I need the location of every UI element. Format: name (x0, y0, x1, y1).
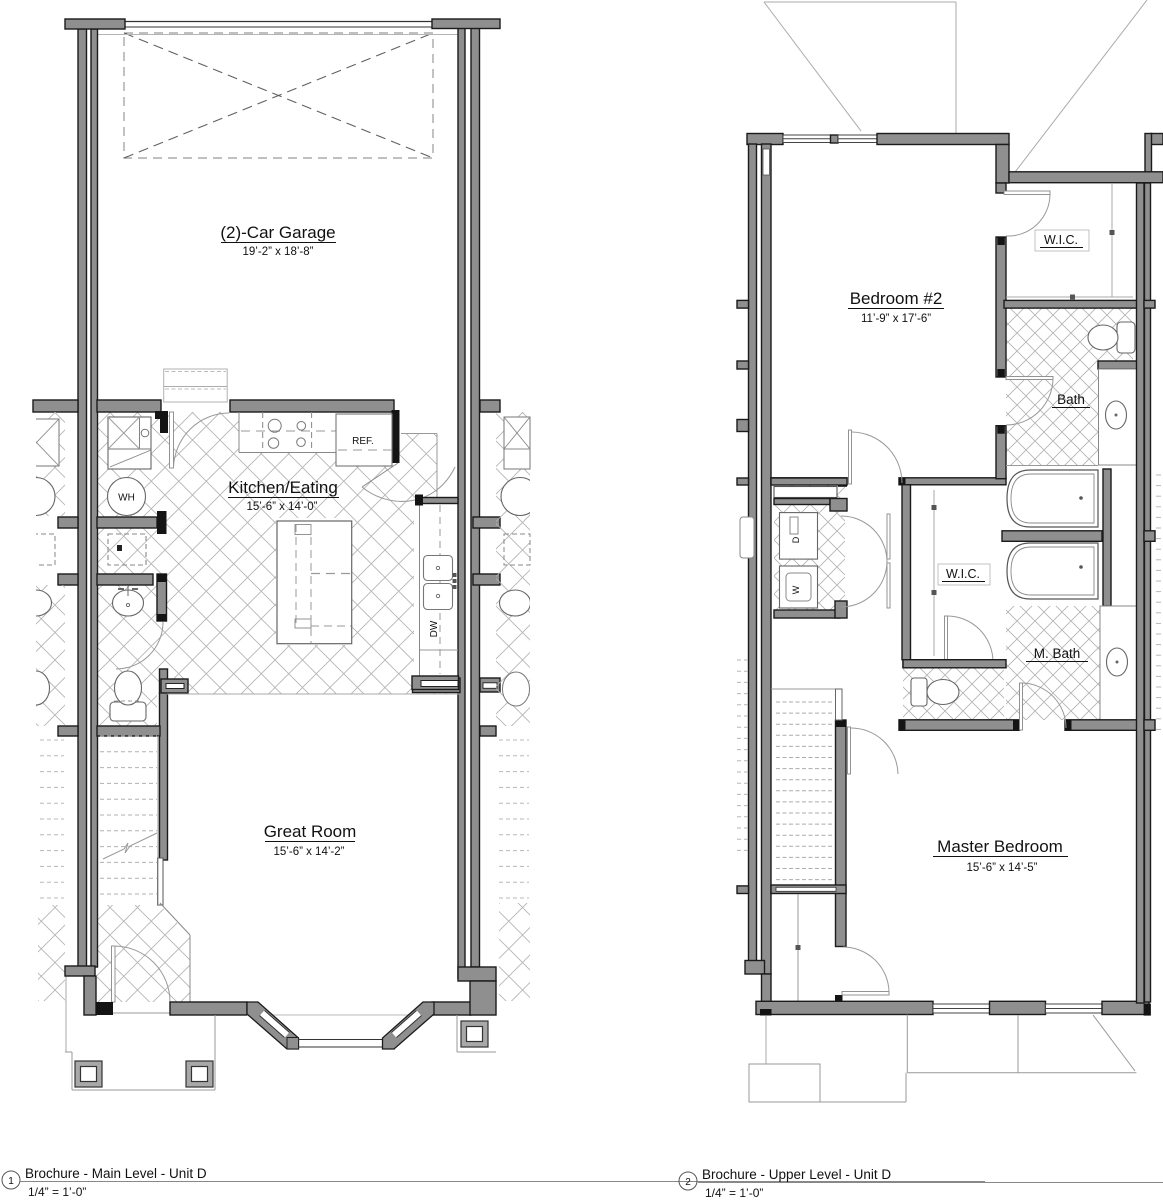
svg-text:W.I.C.: W.I.C. (1044, 233, 1078, 247)
svg-text:(2)-Car Garage: (2)-Car Garage (220, 223, 335, 242)
svg-text:W: W (791, 585, 801, 594)
svg-text:D: D (791, 536, 801, 543)
svg-text:Bedroom #2: Bedroom #2 (850, 289, 943, 308)
svg-text:Kitchen/Eating: Kitchen/Eating (228, 478, 338, 497)
svg-text:15’-6” x 14’-0”: 15’-6” x 14’-0” (247, 501, 318, 513)
svg-text:Master Bedroom: Master Bedroom (937, 837, 1063, 856)
svg-text:19’-2” x 18’-8”: 19’-2” x 18’-8” (243, 246, 314, 258)
svg-text:Brochure - Main Level - Unit D: Brochure - Main Level - Unit D (25, 1166, 207, 1181)
svg-text:WH: WH (118, 493, 135, 504)
svg-text:1/4” = 1’-0”: 1/4” = 1’-0” (28, 1185, 86, 1199)
svg-text:1/4” = 1’-0”: 1/4” = 1’-0” (705, 1186, 763, 1200)
svg-text:Brochure - Upper Level - Unit: Brochure - Upper Level - Unit D (702, 1167, 891, 1182)
svg-text:1: 1 (8, 1176, 14, 1187)
svg-text:W.I.C.: W.I.C. (946, 567, 980, 581)
svg-text:15’-6” x 14’-2”: 15’-6” x 14’-2” (274, 846, 345, 858)
svg-text:Great Room: Great Room (264, 822, 357, 841)
svg-text:11’-9” x 17’-6”: 11’-9” x 17’-6” (861, 313, 931, 325)
svg-text:15’-6” x 14’-5”: 15’-6” x 14’-5” (967, 862, 1038, 874)
svg-text:Bath: Bath (1057, 392, 1085, 407)
svg-text:REF.: REF. (352, 436, 374, 447)
svg-text:2: 2 (685, 1177, 691, 1188)
svg-text:DW: DW (429, 620, 440, 637)
svg-text:M. Bath: M. Bath (1034, 646, 1081, 661)
